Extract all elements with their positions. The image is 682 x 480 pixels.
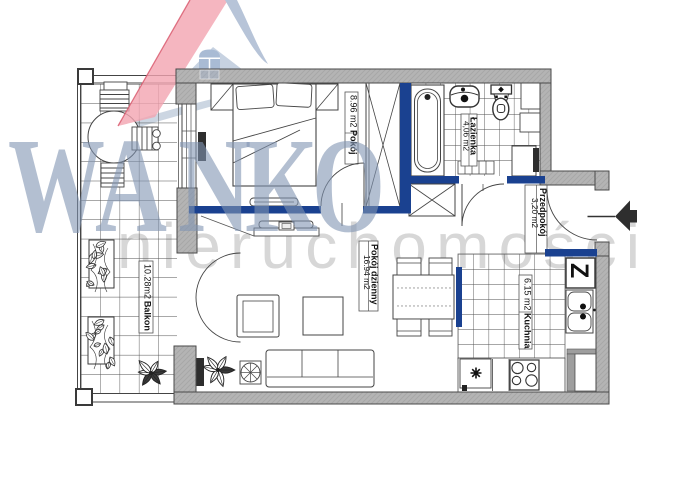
- svg-text:W: W: [8, 111, 105, 261]
- svg-text:N: N: [178, 111, 251, 261]
- svg-text:3,20 m2: 3,20 m2: [530, 198, 540, 228]
- svg-text:Z: Z: [565, 263, 593, 278]
- svg-text:6.15 m2 Kuchnia: 6.15 m2 Kuchnia: [523, 278, 533, 350]
- svg-text:K: K: [245, 111, 318, 261]
- svg-text:A: A: [95, 111, 167, 261]
- svg-text:10.28m2 Balkon: 10.28m2 Balkon: [143, 264, 153, 331]
- svg-text:4,06 m2: 4,06 m2: [462, 121, 472, 151]
- svg-text:O: O: [312, 111, 385, 261]
